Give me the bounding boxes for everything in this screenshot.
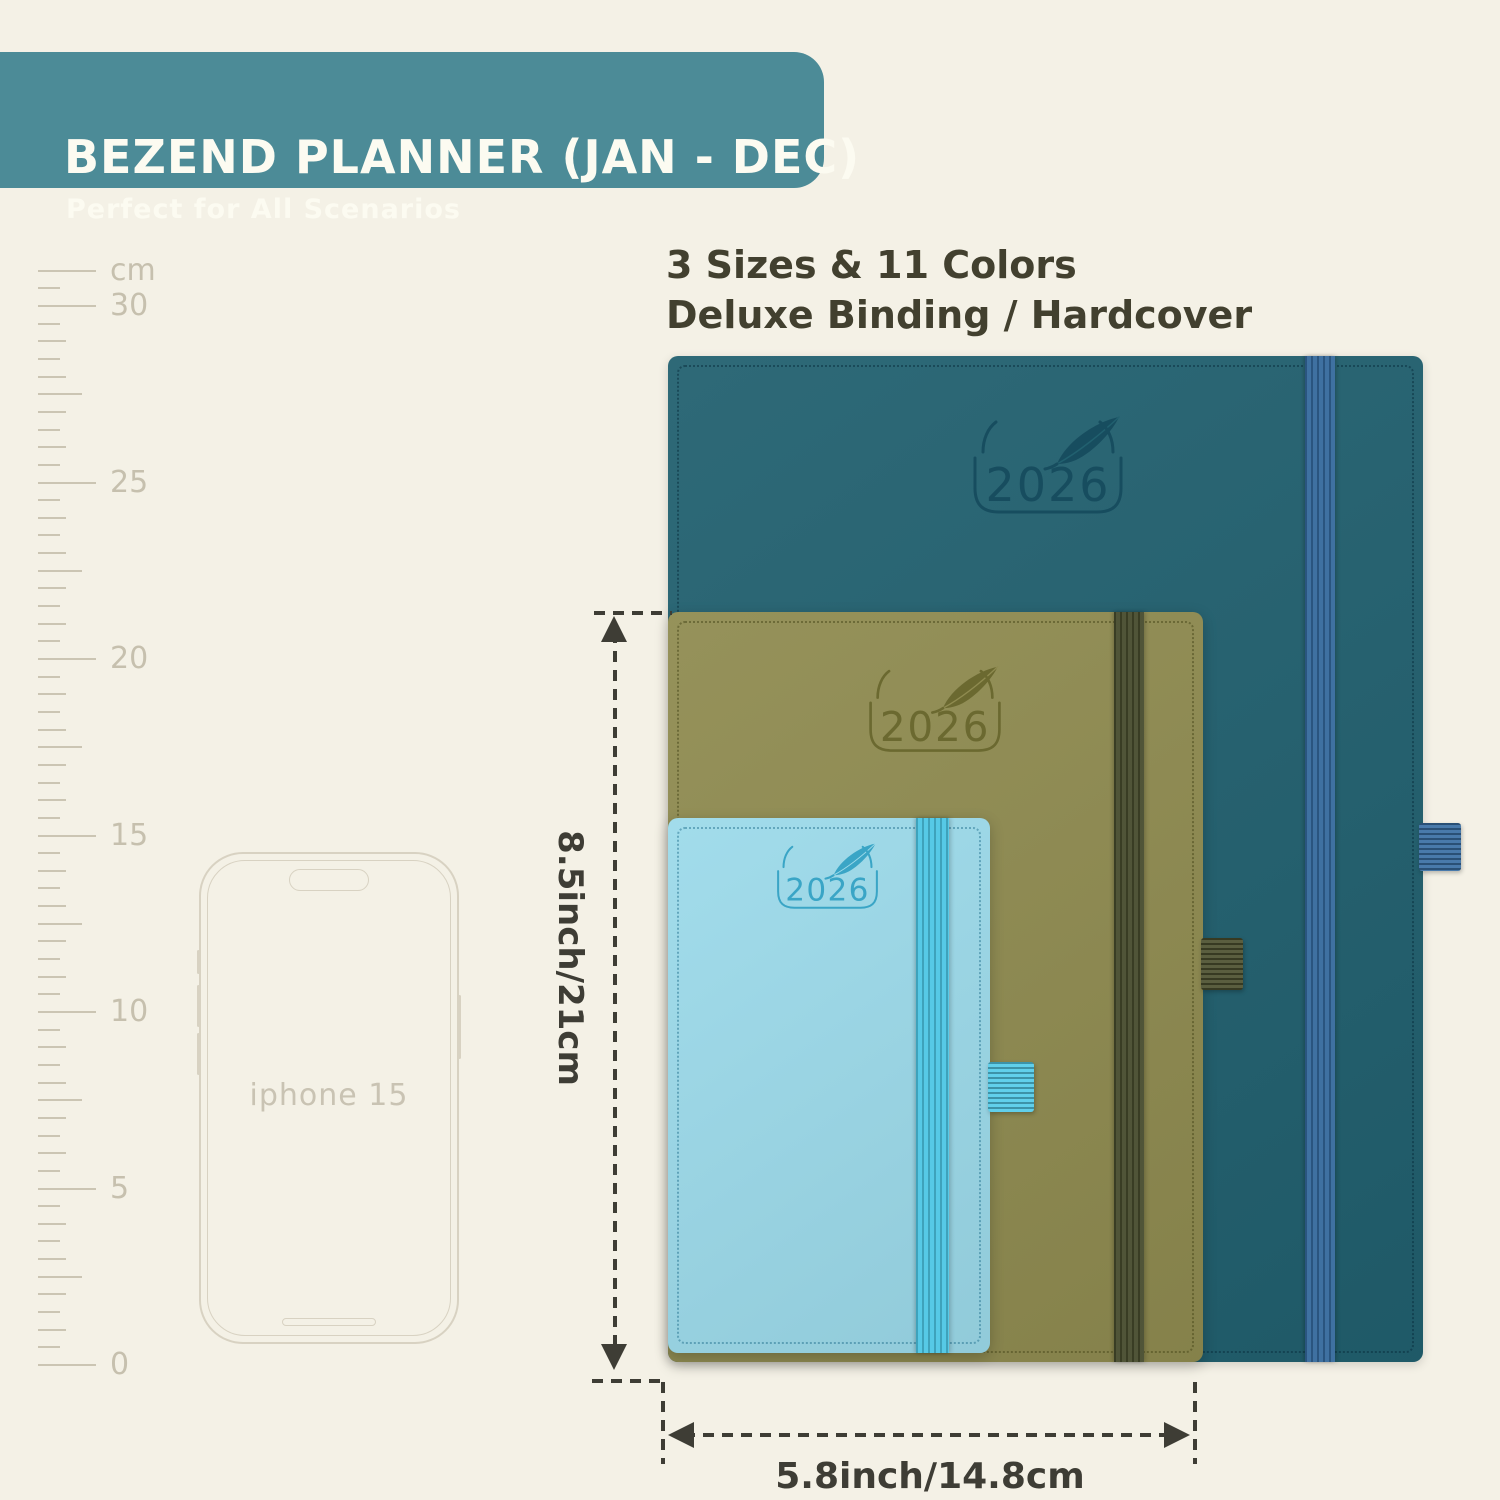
ruler-tick <box>38 393 82 395</box>
ruler-tick <box>38 376 66 378</box>
ruler: 051015202530cm <box>38 0 218 1500</box>
elastic-band <box>916 818 949 1353</box>
ruler-label: 5 <box>110 1170 129 1205</box>
ruler-tick <box>38 358 60 360</box>
planner-small-blue: 2026 <box>668 818 990 1353</box>
ruler-tick <box>38 1240 60 1242</box>
ruler-tick <box>38 517 66 519</box>
ruler-tick <box>38 993 60 995</box>
width-extension-line-right <box>1193 1382 1197 1464</box>
ruler-tick <box>38 1099 82 1101</box>
ruler-tick <box>38 1223 66 1225</box>
ruler-tick <box>38 1170 60 1172</box>
year-text: 2026 <box>785 872 870 908</box>
ruler-tick <box>38 534 60 536</box>
logo-left-arc <box>878 671 889 697</box>
ruler-tick <box>38 270 96 272</box>
ruler-label: cm <box>110 252 156 287</box>
ruler-tick <box>38 464 60 466</box>
ruler-label: 30 <box>110 288 148 323</box>
ruler-tick <box>38 570 82 572</box>
elastic-band <box>1114 612 1144 1362</box>
ruler-tick <box>38 623 66 625</box>
phone-side-button <box>197 1033 200 1075</box>
ruler-tick <box>38 1117 66 1119</box>
phone-power-button <box>458 995 461 1059</box>
pen-loop <box>1419 823 1461 871</box>
ruler-tick <box>38 1046 66 1048</box>
ruler-tick <box>38 411 66 413</box>
ruler-tick <box>38 1346 60 1348</box>
elastic-band <box>1305 356 1335 1362</box>
ruler-tick <box>38 835 96 837</box>
ruler-tick <box>38 676 60 678</box>
year-2026-logo: 2026 <box>860 664 1010 770</box>
height-dimension-line <box>613 632 617 1348</box>
ruler-tick <box>38 1011 96 1013</box>
ruler-tick <box>38 1029 60 1031</box>
height-extension-line-top <box>594 611 672 615</box>
logo-left-arc <box>983 422 996 452</box>
product-infographic: BEZEND PLANNER (JAN - DEC) Perfect for A… <box>0 0 1500 1500</box>
ruler-tick <box>38 1152 66 1154</box>
ruler-tick <box>38 305 96 307</box>
phone-side-button <box>197 985 200 1027</box>
ruler-tick <box>38 1082 66 1084</box>
logo-left-arc <box>784 847 793 867</box>
feature-text: 3 Sizes & 11 Colors Deluxe Binding / Har… <box>666 240 1252 340</box>
ruler-tick <box>38 340 66 342</box>
phone-bottom-speaker <box>282 1318 376 1326</box>
arrow-right-icon <box>1164 1422 1190 1448</box>
ruler-label: 15 <box>110 817 148 852</box>
arrow-left-icon <box>668 1422 694 1448</box>
ruler-tick <box>38 764 66 766</box>
ruler-tick <box>38 976 66 978</box>
ruler-tick <box>38 940 66 942</box>
ruler-tick <box>38 587 66 589</box>
ruler-tick <box>38 1135 60 1137</box>
ruler-tick <box>38 1311 60 1313</box>
page-title: BEZEND PLANNER (JAN - DEC) <box>64 130 860 184</box>
ruler-tick <box>38 446 66 448</box>
ruler-tick <box>38 905 66 907</box>
page-subtitle: Perfect for All Scenarios <box>66 194 461 225</box>
year-2026-logo: 2026 <box>963 414 1133 534</box>
ruler-tick <box>38 852 60 854</box>
phone-label: iphone 15 <box>201 1078 457 1113</box>
ruler-label: 10 <box>110 994 148 1029</box>
ruler-tick <box>38 1258 66 1260</box>
ruler-tick <box>38 323 60 325</box>
arrow-down-icon <box>601 1344 627 1370</box>
ruler-tick <box>38 799 66 801</box>
ruler-tick <box>38 1188 96 1190</box>
ruler-tick <box>38 482 96 484</box>
ruler-tick <box>38 958 60 960</box>
ruler-tick <box>38 640 60 642</box>
ruler-tick <box>38 1293 66 1295</box>
arrow-up-icon <box>601 616 627 642</box>
phone-side-button <box>197 950 200 974</box>
feature-line-sizes: 3 Sizes & 11 Colors <box>666 240 1252 290</box>
width-dimension-label: 5.8inch/14.8cm <box>730 1456 1130 1497</box>
pen-loop <box>1201 938 1243 990</box>
ruler-tick <box>38 782 60 784</box>
ruler-tick <box>38 693 66 695</box>
iphone-15-outline: iphone 15 <box>199 852 459 1344</box>
ruler-label: 25 <box>110 464 148 499</box>
year-text: 2026 <box>985 458 1110 512</box>
ruler-tick <box>38 1329 66 1331</box>
ruler-tick <box>38 1064 60 1066</box>
ruler-tick <box>38 887 60 889</box>
ruler-tick <box>38 1364 96 1366</box>
feature-line-binding: Deluxe Binding / Hardcover <box>666 290 1252 340</box>
ruler-tick <box>38 552 66 554</box>
ruler-tick <box>38 711 60 713</box>
width-dimension-line <box>684 1433 1178 1437</box>
width-extension-line-left <box>661 1382 665 1464</box>
year-text: 2026 <box>880 703 990 751</box>
ruler-tick <box>38 746 82 748</box>
ruler-tick <box>38 287 60 289</box>
ruler-tick <box>38 605 60 607</box>
ruler-tick <box>38 870 66 872</box>
ruler-tick <box>38 658 96 660</box>
pen-loop <box>988 1062 1034 1112</box>
dynamic-island <box>289 869 369 891</box>
ruler-tick <box>38 499 60 501</box>
ruler-tick <box>38 1205 60 1207</box>
ruler-label: 0 <box>110 1347 129 1382</box>
ruler-tick <box>38 729 66 731</box>
ruler-tick <box>38 1276 82 1278</box>
ruler-tick <box>38 429 60 431</box>
height-dimension-label: 8.5inch/21cm <box>550 830 590 1086</box>
header-banner: BEZEND PLANNER (JAN - DEC) Perfect for A… <box>0 52 824 188</box>
ruler-tick <box>38 817 60 819</box>
height-extension-line-bottom <box>592 1379 666 1383</box>
year-2026-logo: 2026 <box>770 841 885 923</box>
ruler-label: 20 <box>110 641 148 676</box>
ruler-tick <box>38 923 82 925</box>
